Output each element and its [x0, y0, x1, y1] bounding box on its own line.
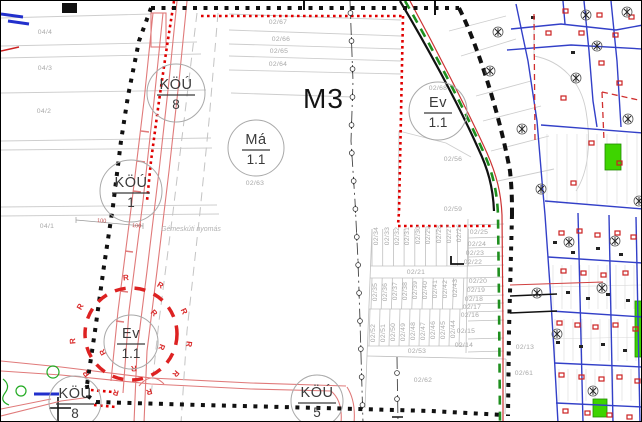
mini-parcel-line — [551, 285, 641, 287]
building-red — [585, 411, 590, 415]
building-black — [626, 299, 630, 302]
zone-numerator: KÖÚ — [301, 383, 334, 401]
building-black — [601, 343, 605, 346]
parcel-label: 02/64 — [269, 61, 288, 68]
parcel-label: 02/29 — [425, 226, 432, 245]
parcel-label: 02/25 — [470, 229, 489, 236]
zoning-map-canvas[interactable]: RRRRRRRRRRRRRR 04/404/304/204/102/6702/6… — [1, 1, 642, 422]
parcel-label: 02/49 — [400, 323, 407, 342]
parcel-label: 02/56 — [444, 156, 463, 163]
gas-symbol — [358, 347, 363, 352]
parcel-label: 02/45 — [440, 321, 447, 340]
gas-line-branch — [397, 357, 398, 422]
street-lines-blue — [507, 1, 642, 422]
zone-circle-kou-5-bottom: KÖÚ5 — [291, 375, 343, 422]
parcel-label: 02/42 — [442, 280, 449, 299]
parcel-label: 02/33 — [384, 227, 391, 246]
gas-symbol — [356, 263, 361, 268]
parcel-label: 02/26 — [456, 224, 463, 243]
zone-numerator: KÖÚ — [160, 75, 193, 93]
zone-denominator: 5 — [313, 405, 321, 420]
radius-r-letter: R — [145, 386, 153, 396]
parcel-label: 02/52 — [370, 324, 377, 343]
parcel-label: 02/34 — [373, 227, 380, 246]
building-red — [581, 271, 586, 275]
building-red — [589, 141, 594, 145]
gas-symbol — [354, 235, 359, 240]
building-red — [627, 415, 632, 419]
gas-symbol — [350, 67, 355, 72]
gas-symbol — [395, 371, 400, 376]
parcel-label: 02/20 — [469, 278, 488, 285]
parcel-label: 02/19 — [467, 287, 486, 294]
zone-numerator: Ev — [429, 95, 447, 111]
tree-glyph — [612, 237, 618, 245]
parcel-grid-lines — [365, 219, 506, 414]
parcel-label: 02/62 — [414, 377, 433, 384]
zone-circle-outline — [147, 64, 205, 122]
parcel-label: 02/43 — [452, 279, 459, 298]
gas-utility-line — [348, 1, 403, 422]
radius-r-letter: R — [112, 387, 120, 397]
parcel-label: 02/13 — [516, 344, 535, 351]
grid-line — [365, 356, 367, 408]
zone-numerator: Má — [245, 132, 267, 148]
tree-icon — [532, 288, 542, 298]
building-red — [615, 231, 620, 235]
gas-symbol — [348, 11, 353, 16]
gas-symbol — [350, 95, 355, 100]
zoning-map-frame: RRRRRRRRRRRRRR 04/404/304/204/102/6702/6… — [0, 0, 642, 422]
parcel-label: 02/40 — [422, 281, 429, 300]
parcel-label: 02/21 — [407, 269, 426, 276]
parcel-label: 02/31 — [404, 227, 411, 246]
tree-icon — [493, 27, 503, 37]
building-red — [559, 373, 564, 377]
parcel-label: 02/51 — [380, 324, 387, 343]
dimension-label: 100 — [97, 218, 107, 225]
parcel-label: 02/66 — [272, 36, 291, 43]
building-red — [557, 321, 562, 325]
tree-icon — [634, 196, 642, 206]
zone-denominator: 8 — [172, 97, 180, 112]
parcel-label: 02/32 — [394, 227, 401, 246]
building-red — [597, 13, 602, 17]
parcel-label: 02/16 — [461, 312, 480, 319]
parcel-label: 02/36 — [382, 283, 389, 302]
building-red — [546, 31, 551, 35]
zone-m3-label: M3 — [303, 83, 344, 114]
building-red — [563, 409, 568, 413]
parcel-label: 02/46 — [430, 321, 437, 340]
building-red — [599, 377, 604, 381]
gas-symbol — [349, 123, 354, 128]
parcel-label: 02/41 — [432, 280, 439, 299]
tree-glyph — [495, 28, 501, 36]
tree-icon — [610, 236, 620, 246]
parcel-label: 02/35 — [372, 283, 379, 302]
tree-icon — [571, 73, 581, 83]
parcel-label: 04/2 — [37, 108, 51, 115]
gas-symbol — [349, 151, 354, 156]
tree-icon — [588, 386, 598, 396]
building-black — [606, 293, 610, 296]
radius-r-letter: R — [68, 338, 77, 345]
building-red — [559, 231, 564, 235]
tree-glyph — [566, 238, 572, 246]
tree-icon — [564, 237, 574, 247]
parcel-label: 02/61 — [515, 370, 534, 377]
building-red — [595, 233, 600, 237]
tree-glyph — [534, 289, 540, 297]
parcel-label: 02/48 — [410, 322, 417, 341]
building-black — [623, 349, 627, 352]
parcel-label: 02/44 — [450, 320, 457, 339]
building-red — [579, 31, 584, 35]
place-note: Gémeskúti nyomás — [161, 226, 221, 233]
parcel-strip-lines — [1, 14, 589, 216]
zone-numerator: KÖÚ — [115, 173, 148, 191]
grid-line — [367, 356, 506, 359]
building-red — [601, 273, 606, 277]
gas-symbol — [349, 39, 354, 44]
dimension-label: 100 — [132, 223, 142, 230]
gray-dashed-lines — [151, 13, 218, 422]
building-red — [631, 235, 636, 239]
tree-icon — [517, 124, 527, 134]
grid-line — [505, 359, 506, 414]
building-black — [556, 341, 560, 344]
zone-circle-kou-8-bottom: KÖÚ8 — [49, 376, 101, 422]
radius-r-letter: R — [149, 308, 160, 319]
radius-r-letter: R — [97, 347, 108, 357]
tree-glyph — [519, 125, 525, 133]
building-red — [613, 323, 618, 327]
parcel-label: 02/38 — [402, 282, 409, 301]
tree-icon — [485, 66, 495, 76]
gas-symbol — [360, 403, 365, 408]
zone-circle-ev-1-1-bottom: Ev1.1 — [104, 315, 158, 369]
radius-r-letter: R — [75, 302, 86, 312]
zone-denominator: 8 — [71, 406, 79, 421]
parcel-label: 02/28 — [436, 225, 443, 244]
zone-denominator: 1 — [127, 195, 135, 210]
parcel-label: 02/14 — [455, 342, 474, 349]
gas-symbol — [357, 291, 362, 296]
building-red — [571, 181, 576, 185]
tree-icon — [597, 283, 607, 293]
parcel-label: 02/65 — [270, 48, 289, 55]
parcel-label: 02/22 — [464, 259, 483, 266]
building-black — [596, 247, 600, 250]
parcel-label: 02/18 — [465, 296, 484, 303]
parcel-label: 02/39 — [412, 281, 419, 300]
zone-denominator: 1.1 — [122, 346, 141, 361]
zone-numerator: Ev — [122, 326, 140, 342]
tree-icon — [536, 184, 546, 194]
building-black — [619, 253, 623, 256]
radius-r-letter: R — [123, 273, 130, 282]
gas-symbol — [353, 207, 358, 212]
parcel-label: 02/27 — [446, 225, 453, 244]
parcel-label: 02/68 — [429, 85, 448, 92]
parcel-label: 02/23 — [466, 250, 485, 257]
building-black — [566, 291, 570, 294]
parcel-label: 02/59 — [444, 206, 463, 213]
tree-icon — [581, 10, 591, 20]
parcel-label: 02/63 — [246, 180, 265, 187]
building-red — [599, 61, 604, 65]
building-black — [586, 297, 590, 300]
parcel-label: 02/53 — [408, 348, 427, 355]
zone-circle-kou-8-top: KÖÚ8 — [147, 64, 205, 122]
parcel-label: 02/67 — [269, 19, 288, 26]
built-area-parcel-lines — [547, 134, 641, 401]
building-red — [561, 96, 566, 100]
zone-numerator: KÖÚ — [59, 384, 92, 402]
building-red — [617, 375, 622, 379]
parcel-label: 02/24 — [468, 241, 487, 248]
tree-glyph — [583, 11, 589, 19]
gas-symbol — [359, 375, 364, 380]
tree-glyph — [625, 115, 631, 123]
parcel-label: 04/4 — [38, 29, 52, 36]
building-red — [575, 323, 580, 327]
parcel-label: 04/1 — [40, 223, 54, 230]
buildings-red — [546, 9, 640, 419]
tree-glyph — [599, 284, 605, 292]
zone-denominator: 1.1 — [429, 115, 448, 130]
zone-denominator: 1.1 — [247, 152, 266, 167]
tree-glyph — [487, 67, 493, 75]
tree-canopy — [634, 196, 642, 206]
parcel-label: 02/50 — [390, 323, 397, 342]
building-black — [579, 345, 583, 348]
parcel-label: 04/3 — [38, 65, 52, 72]
tree-icon — [623, 114, 633, 124]
parcel-label: 02/37 — [392, 282, 399, 301]
parcel-labels: 04/404/304/204/102/6702/6602/6502/6402/6… — [37, 19, 534, 384]
gas-symbol — [351, 179, 356, 184]
gas-symbol — [395, 397, 400, 402]
building-black — [553, 241, 557, 244]
radius-r-letter: R — [179, 307, 190, 316]
building-red — [623, 271, 628, 275]
tree-icon — [622, 7, 632, 17]
building-red — [593, 325, 598, 329]
parcel-label: 02/47 — [420, 322, 427, 341]
building-black — [571, 251, 575, 254]
parcel-label: 02/15 — [457, 328, 476, 335]
mini-parcel-line — [553, 337, 641, 339]
zone-circle-outline — [228, 120, 284, 176]
radius-r-letter: R — [170, 368, 181, 378]
building-black — [571, 51, 575, 54]
zone-circle-ma-1-1: Má1.1 — [228, 120, 284, 176]
parcel-label: 02/17 — [463, 304, 482, 311]
gas-symbol — [358, 319, 363, 324]
building-red — [607, 413, 612, 417]
building-red — [629, 15, 634, 19]
parcel-label: 02/30 — [415, 226, 422, 245]
